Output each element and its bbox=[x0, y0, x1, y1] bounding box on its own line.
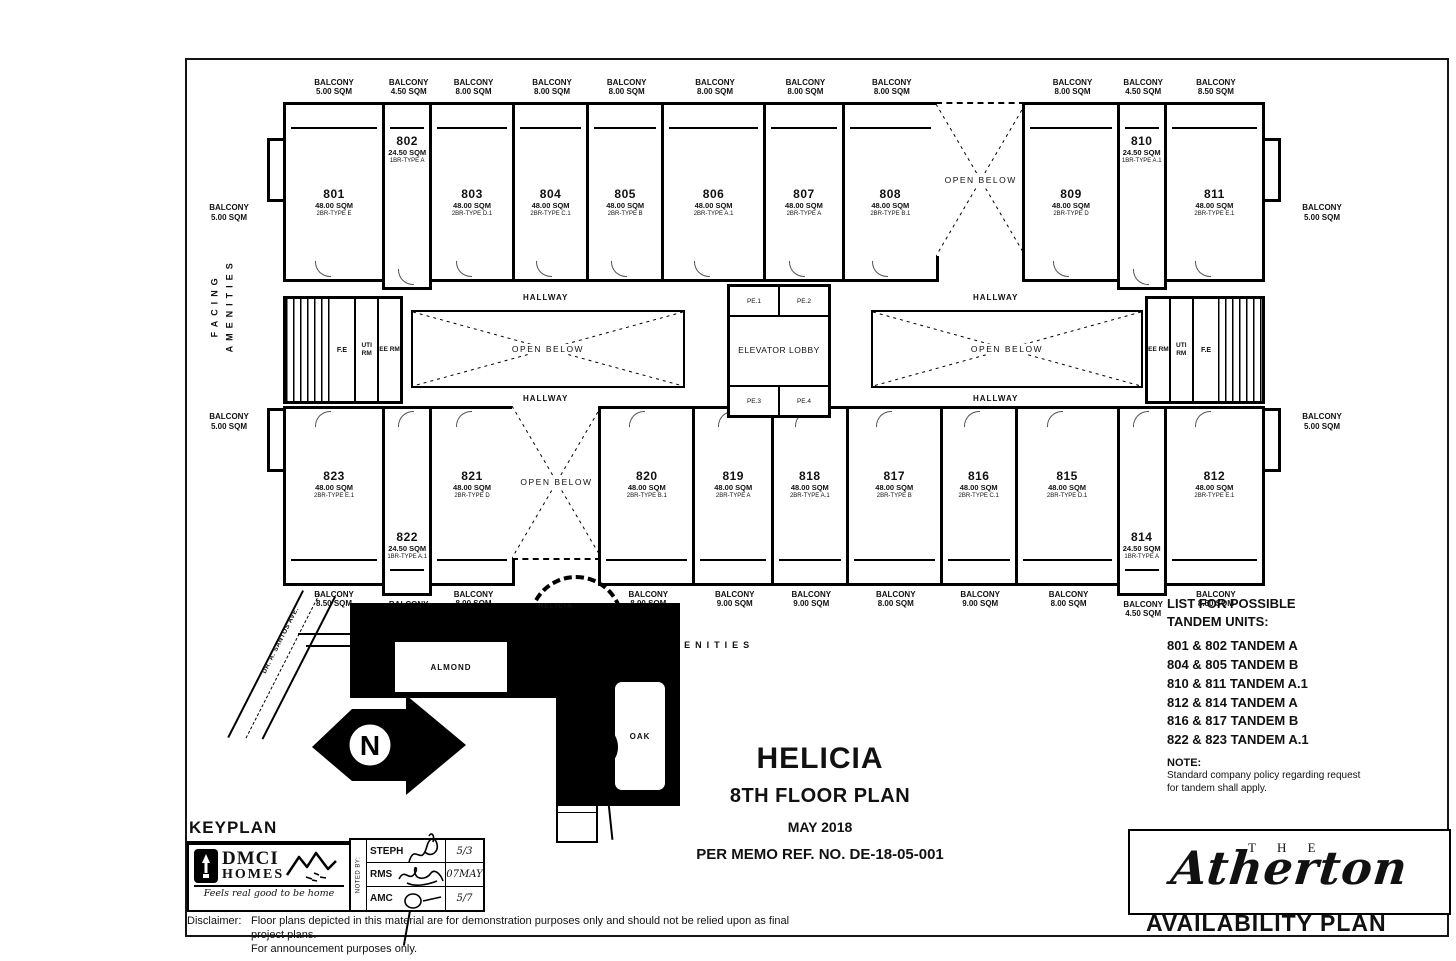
facing-amenities-left: FACING AMENITIES bbox=[208, 230, 239, 380]
unit-type: 2BR-TYPE C.1 bbox=[959, 493, 999, 500]
balcony-area: 8.00 SQM bbox=[845, 87, 939, 96]
unit-type: 2BR-TYPE B.1 bbox=[870, 211, 910, 218]
unit-type: 2BR-TYPE A.1 bbox=[790, 493, 830, 500]
unit-area: 48.00 SQM bbox=[532, 201, 570, 210]
unit-number: 819 bbox=[722, 470, 744, 483]
unit-820: 820 48.00 SQM 2BR-TYPE B.1 bbox=[598, 406, 695, 586]
open-below-label: OPEN BELOW bbox=[509, 344, 587, 354]
unit-number: 811 bbox=[1204, 188, 1225, 201]
note-block: NOTE: Standard company policy regarding … bbox=[1167, 757, 1417, 795]
balcony-label: BALCONY 8.50 SQM bbox=[1167, 78, 1265, 102]
utility-room: UTI RM bbox=[1171, 299, 1194, 401]
unit-804: 804 48.00 SQM 2BR-TYPE C.1 bbox=[512, 102, 590, 282]
unit-number: 814 bbox=[1131, 531, 1153, 544]
balcony-label: BALCONY 4.50 SQM bbox=[1120, 78, 1167, 102]
unit-814: 814 24.50 SQM 1BR-TYPE A bbox=[1117, 406, 1167, 596]
unit-number: 808 bbox=[880, 188, 902, 201]
balcony-word: BALCONY bbox=[589, 78, 664, 87]
fire-exit-stairs-right: EE RM UTI RM F.E bbox=[1145, 296, 1265, 404]
unit-815: 815 48.00 SQM 2BR-TYPE D.1 bbox=[1015, 406, 1120, 586]
driveway-line bbox=[298, 633, 352, 635]
mountain-art-icon bbox=[286, 849, 338, 883]
unit-type: 2BR-TYPE A bbox=[716, 493, 751, 500]
unit-type: 2BR-TYPE A.1 bbox=[694, 211, 734, 218]
oak-label: OAK bbox=[630, 732, 651, 741]
balcony-word: BALCONY bbox=[385, 78, 432, 87]
balcony-area: 8.00 SQM bbox=[1025, 87, 1119, 96]
unit-area: 48.00 SQM bbox=[315, 483, 353, 492]
balcony-word: BALCONY bbox=[845, 78, 939, 87]
approval-date: 07MAY bbox=[445, 863, 483, 886]
unit-type: 2BR-TYPE E.1 bbox=[314, 493, 354, 500]
side-balcony-label: BALCONY 5.00 SQM bbox=[1291, 412, 1353, 431]
unit-area: 24.50 SQM bbox=[1123, 148, 1161, 157]
unit-type: 2BR-TYPE D.1 bbox=[452, 211, 492, 218]
hallway-label: HALLWAY bbox=[523, 394, 568, 403]
balcony-label: BALCONY 8.00 SQM bbox=[432, 78, 514, 102]
unit-type: 2BR-TYPE D.1 bbox=[1047, 493, 1087, 500]
unit-number: 818 bbox=[799, 470, 821, 483]
balcony-area: 8.00 SQM bbox=[589, 87, 664, 96]
tandem-item: 812 & 814 TANDEM A bbox=[1167, 694, 1427, 713]
balcony-label: BALCONY 4.50 SQM bbox=[385, 78, 432, 102]
unit-number: 801 bbox=[323, 188, 345, 201]
balcony-label: BALCONY 8.00 SQM bbox=[1025, 78, 1119, 102]
disclaimer-line: For announcement purposes only. bbox=[251, 943, 796, 957]
unit-type: 2BR-TYPE C.1 bbox=[530, 211, 570, 218]
balcony-label: BALCONY 8.00 SQM bbox=[1018, 586, 1120, 616]
corner-balcony bbox=[1263, 408, 1281, 472]
unit-type: 2BR-TYPE B bbox=[877, 493, 912, 500]
unit-area: 24.50 SQM bbox=[388, 148, 426, 157]
side-balcony-label: BALCONY 5.00 SQM bbox=[198, 412, 260, 431]
balcony-word: BALCONY bbox=[1302, 203, 1342, 212]
approver-name-text: STEPH bbox=[370, 846, 403, 857]
balcony-word: BALCONY bbox=[432, 78, 514, 87]
unit-area: 48.00 SQM bbox=[875, 483, 913, 492]
electrical-room: EE RM bbox=[377, 299, 400, 401]
unit-823: 823 48.00 SQM 2BR-TYPE E.1 bbox=[283, 406, 385, 586]
balcony-word: BALCONY bbox=[1302, 412, 1342, 421]
balcony-area: 5.00 SQM bbox=[211, 213, 247, 222]
balcony-word: BALCONY bbox=[1018, 590, 1120, 599]
unit-number: 806 bbox=[703, 188, 725, 201]
balcony-label-empty bbox=[939, 78, 1025, 102]
signature-rms bbox=[397, 863, 445, 889]
corridor-band: HALLWAY HALLWAY HALLWAY HALLWAY F.E UTI … bbox=[283, 290, 1265, 406]
dmci-text: DMCI bbox=[222, 850, 284, 868]
unit-area: 48.00 SQM bbox=[871, 201, 909, 210]
balcony-label: BALCONY 8.00 SQM bbox=[515, 78, 590, 102]
balcony-word: BALCONY bbox=[774, 590, 849, 599]
corner-balcony bbox=[1263, 138, 1281, 202]
elevator-row-top: PE.1 PE.2 bbox=[730, 287, 828, 317]
open-below-label: OPEN BELOW bbox=[968, 344, 1046, 354]
approver-name: AMC bbox=[367, 887, 445, 910]
unit-type: 1BR-TYPE A bbox=[390, 158, 425, 165]
balcony-area: 8.00 SQM bbox=[515, 87, 590, 96]
unit-816: 816 48.00 SQM 2BR-TYPE C.1 bbox=[940, 406, 1018, 586]
unit-number: 803 bbox=[461, 188, 483, 201]
balcony-area: 8.00 SQM bbox=[766, 87, 845, 96]
unit-806: 806 48.00 SQM 2BR-TYPE A.1 bbox=[661, 102, 766, 282]
balcony-area: 8.00 SQM bbox=[664, 87, 766, 96]
balcony-area: 8.00 SQM bbox=[432, 87, 514, 96]
balcony-area: 9.00 SQM bbox=[774, 599, 849, 608]
balcony-word: BALCONY bbox=[209, 412, 249, 421]
unit-811: 811 48.00 SQM 2BR-TYPE E.1 bbox=[1164, 102, 1265, 282]
elevator-pe1: PE.1 bbox=[730, 287, 778, 315]
helicia-site-label: HELICIA bbox=[538, 603, 573, 610]
driveway-line bbox=[306, 645, 352, 647]
balcony-word: BALCONY bbox=[766, 78, 845, 87]
tandem-list: LIST FOR POSSIBLE TANDEM UNITS: 801 & 80… bbox=[1167, 595, 1427, 750]
hallway-label: HALLWAY bbox=[523, 293, 568, 302]
unit-822: 822 24.50 SQM 1BR-TYPE A.1 bbox=[382, 406, 432, 596]
floor-plan-title: 8TH FLOOR PLAN bbox=[640, 785, 1000, 808]
noted-by-text: NOTED BY: bbox=[356, 857, 362, 894]
approver-name-text: RMS bbox=[370, 869, 392, 880]
balcony-label: BALCONY 9.00 SQM bbox=[943, 586, 1018, 616]
balcony-label: BALCONY 8.00 SQM bbox=[766, 78, 845, 102]
elevator-pe4: PE.4 bbox=[778, 387, 828, 415]
unit-area: 48.00 SQM bbox=[1052, 201, 1090, 210]
unit-812: 812 48.00 SQM 2BR-TYPE E.1 bbox=[1164, 406, 1265, 586]
unit-818: 818 48.00 SQM 2BR-TYPE A.1 bbox=[771, 406, 849, 586]
atherton-logo-box: T H E Atherton bbox=[1128, 829, 1451, 915]
disclaimer-line: Floor plans depicted in this material ar… bbox=[251, 915, 796, 943]
utility-room: UTI RM bbox=[354, 299, 377, 401]
unit-area: 48.00 SQM bbox=[960, 483, 998, 492]
balcony-area: 5.00 SQM bbox=[211, 422, 247, 431]
unit-area: 48.00 SQM bbox=[1195, 201, 1233, 210]
unit-area: 24.50 SQM bbox=[388, 544, 426, 553]
fire-exit-label: F.E bbox=[1194, 299, 1219, 401]
balcony-word: BALCONY bbox=[1167, 78, 1265, 87]
keyplan-heading: KEYPLAN bbox=[189, 818, 277, 838]
unit-number: 816 bbox=[968, 470, 990, 483]
unit-area: 48.00 SQM bbox=[785, 201, 823, 210]
approver-name: RMS bbox=[367, 863, 445, 886]
fire-exit-label: F.E bbox=[330, 299, 355, 401]
note-title: NOTE: bbox=[1167, 757, 1417, 769]
balcony-word: BALCONY bbox=[209, 203, 249, 212]
unit-number: 822 bbox=[396, 531, 418, 544]
balcony-area: 8.50 SQM bbox=[1167, 87, 1265, 96]
balcony-label: BALCONY 8.00 SQM bbox=[849, 586, 943, 616]
elevator-lobby-label: ELEVATOR LOBBY bbox=[730, 317, 828, 385]
tandem-item: 810 & 811 TANDEM A.1 bbox=[1167, 675, 1427, 694]
elevator-pe3: PE.3 bbox=[730, 387, 778, 415]
dmci-homes-logo: DMCI HOMES Feels real good to be home bbox=[187, 843, 351, 912]
homes-text: HOMES bbox=[222, 868, 284, 881]
balcony-word: BALCONY bbox=[1025, 78, 1119, 87]
note-line: for tandem shall apply. bbox=[1167, 782, 1417, 795]
unit-817: 817 48.00 SQM 2BR-TYPE B bbox=[846, 406, 943, 586]
keyplan-site-map: DR. A. SANTOS AVE. HELICIA ALMOND OAK N bbox=[218, 573, 708, 851]
approval-date: 5/7 bbox=[445, 887, 483, 910]
unit-type: 1BR-TYPE A.1 bbox=[1122, 158, 1162, 165]
open-below-label: OPEN BELOW bbox=[942, 175, 1020, 185]
unit-number: 805 bbox=[614, 188, 636, 201]
unit-area: 48.00 SQM bbox=[628, 483, 666, 492]
electrical-room: EE RM bbox=[1148, 299, 1171, 401]
unit-area: 48.00 SQM bbox=[315, 201, 353, 210]
balcony-word: BALCONY bbox=[664, 78, 766, 87]
svg-text:N: N bbox=[360, 730, 380, 761]
balcony-label: BALCONY 5.00 SQM bbox=[283, 78, 385, 102]
unit-type: 2BR-TYPE A bbox=[787, 211, 822, 218]
unit-type: 2BR-TYPE D bbox=[454, 493, 489, 500]
tandem-item: 804 & 805 TANDEM B bbox=[1167, 656, 1427, 675]
unit-821: 821 48.00 SQM 2BR-TYPE D bbox=[429, 406, 514, 586]
unit-area: 48.00 SQM bbox=[695, 201, 733, 210]
unit-type: 2BR-TYPE E bbox=[317, 211, 352, 218]
side-balcony-label: BALCONY 5.00 SQM bbox=[1291, 203, 1353, 222]
balcony-word: BALCONY bbox=[943, 590, 1018, 599]
balcony-area: 4.50 SQM bbox=[1120, 609, 1167, 618]
unit-area: 48.00 SQM bbox=[453, 201, 491, 210]
tandem-item: 801 & 802 TANDEM A bbox=[1167, 637, 1427, 656]
dmci-tagline: Feels real good to be home bbox=[189, 887, 349, 899]
title-block: HELICIA 8TH FLOOR PLAN MAY 2018 PER MEMO… bbox=[640, 742, 1000, 863]
balcony-area: 8.00 SQM bbox=[849, 599, 943, 608]
unit-area: 48.00 SQM bbox=[606, 201, 644, 210]
top-unit-row: BALCONY 5.00 SQM 801 48.00 SQM 2BR-TYPE … bbox=[283, 78, 1265, 290]
noted-by-header: NOTED BY: bbox=[351, 840, 367, 910]
unit-number: 817 bbox=[883, 470, 905, 483]
unit-802: 802 24.50 SQM 1BR-TYPE A bbox=[382, 102, 432, 290]
plan-date: MAY 2018 bbox=[640, 819, 1000, 835]
unit-type: 2BR-TYPE D bbox=[1053, 211, 1088, 218]
unit-801: 801 48.00 SQM 2BR-TYPE E bbox=[283, 102, 385, 282]
unit-819: 819 48.00 SQM 2BR-TYPE A bbox=[692, 406, 774, 586]
unit-number: 823 bbox=[323, 470, 345, 483]
unit-type: 1BR-TYPE A.1 bbox=[387, 554, 427, 561]
elevator-pe2: PE.2 bbox=[778, 287, 828, 315]
unit-number: 807 bbox=[793, 188, 815, 201]
floor-plan: BALCONY 5.00 SQM 801 48.00 SQM 2BR-TYPE … bbox=[283, 78, 1265, 636]
unit-type: 2BR-TYPE E.1 bbox=[1194, 493, 1234, 500]
unit-number: 802 bbox=[396, 135, 418, 148]
unit-number: 820 bbox=[636, 470, 658, 483]
balcony-word: BALCONY bbox=[283, 78, 385, 87]
approver-name: STEPH bbox=[367, 840, 445, 863]
approval-date: 5/3 bbox=[445, 840, 483, 863]
open-below-label: OPEN BELOW bbox=[517, 477, 595, 487]
unit-number: 812 bbox=[1204, 470, 1226, 483]
north-arrow-icon: N bbox=[310, 695, 468, 795]
signature-amc bbox=[399, 889, 445, 913]
almond-label: ALMOND bbox=[430, 663, 471, 672]
tandem-title-line2: TANDEM UNITS: bbox=[1167, 613, 1427, 631]
hallway-label: HALLWAY bbox=[973, 394, 1018, 403]
balcony-label: BALCONY 4.50 SQM bbox=[1120, 596, 1167, 626]
unit-type: 2BR-TYPE E.1 bbox=[1194, 211, 1234, 218]
open-below-void-bottom: OPEN BELOW bbox=[512, 406, 601, 560]
unit-807: 807 48.00 SQM 2BR-TYPE A bbox=[763, 102, 845, 282]
unit-type: 1BR-TYPE A bbox=[1124, 554, 1159, 561]
tandem-item: 816 & 817 TANDEM B bbox=[1167, 712, 1427, 731]
unit-area: 48.00 SQM bbox=[791, 483, 829, 492]
balcony-label: BALCONY 9.00 SQM bbox=[774, 586, 849, 616]
tandem-item: 822 & 823 TANDEM A.1 bbox=[1167, 731, 1427, 750]
elevator-lobby: PE.1 PE.2 ELEVATOR LOBBY PE.3 PE.4 bbox=[727, 284, 831, 418]
balcony-word: BALCONY bbox=[849, 590, 943, 599]
unit-area: 48.00 SQM bbox=[714, 483, 752, 492]
balcony-area: 5.00 SQM bbox=[1304, 422, 1340, 431]
open-below-left: OPEN BELOW bbox=[411, 310, 685, 388]
unit-number: 815 bbox=[1056, 470, 1078, 483]
almond-building: ALMOND bbox=[394, 641, 508, 693]
dmci-wordmark: DMCI HOMES bbox=[222, 850, 284, 881]
site-circle-feature bbox=[570, 723, 618, 771]
unit-810: 810 24.50 SQM 1BR-TYPE A.1 bbox=[1117, 102, 1167, 290]
balcony-label: BALCONY 8.00 SQM bbox=[589, 78, 664, 102]
unit-809: 809 48.00 SQM 2BR-TYPE D bbox=[1022, 102, 1119, 282]
unit-803: 803 48.00 SQM 2BR-TYPE D.1 bbox=[429, 102, 514, 282]
balcony-area: 5.00 SQM bbox=[1304, 213, 1340, 222]
project-name: HELICIA bbox=[640, 742, 1000, 776]
disclaimer: Disclaimer: Floor plans depicted in this… bbox=[187, 915, 796, 956]
unit-type: 2BR-TYPE B.1 bbox=[627, 493, 667, 500]
dmci-plumb-icon bbox=[194, 849, 218, 883]
stair-treads bbox=[286, 299, 330, 401]
unit-area: 48.00 SQM bbox=[453, 483, 491, 492]
balcony-label: BALCONY 8.00 SQM bbox=[664, 78, 766, 102]
unit-type: 2BR-TYPE B bbox=[608, 211, 643, 218]
balcony-label: BALCONY 8.00 SQM bbox=[845, 78, 939, 102]
noted-by-table: NOTED BY: STEPH 5/3 RMS 07MAY AMC 5/7 bbox=[349, 838, 485, 912]
stair-treads bbox=[1218, 299, 1262, 401]
unit-number: 821 bbox=[461, 470, 483, 483]
open-below-void-top: OPEN BELOW bbox=[936, 102, 1025, 256]
open-below-right: OPEN BELOW bbox=[871, 310, 1143, 388]
fire-exit-stairs-left: F.E UTI RM EE RM bbox=[283, 296, 403, 404]
unit-area: 48.00 SQM bbox=[1195, 483, 1233, 492]
availability-plan-label: AVAILABILITY PLAN bbox=[1146, 910, 1387, 937]
brand-name: Atherton bbox=[1127, 841, 1452, 895]
balcony-area: 4.50 SQM bbox=[385, 87, 432, 96]
balcony-word: BALCONY bbox=[1120, 600, 1167, 609]
balcony-word: BALCONY bbox=[1120, 78, 1167, 87]
memo-reference: PER MEMO REF. NO. DE-18-05-001 bbox=[640, 846, 1000, 863]
hallway-label: HALLWAY bbox=[973, 293, 1018, 302]
road-centerline bbox=[246, 594, 320, 739]
unit-number: 809 bbox=[1060, 188, 1082, 201]
balcony-area: 5.00 SQM bbox=[283, 87, 385, 96]
unit-805: 805 48.00 SQM 2BR-TYPE B bbox=[586, 102, 664, 282]
tandem-title-line1: LIST FOR POSSIBLE bbox=[1167, 595, 1427, 613]
unit-808: 808 48.00 SQM 2BR-TYPE B.1 bbox=[842, 102, 939, 282]
unit-area: 48.00 SQM bbox=[1048, 483, 1086, 492]
side-balcony-label: BALCONY 5.00 SQM bbox=[198, 203, 260, 222]
unit-number: 810 bbox=[1131, 135, 1153, 148]
balcony-area: 8.00 SQM bbox=[1018, 599, 1120, 608]
elevator-row-bottom: PE.3 PE.4 bbox=[730, 385, 828, 415]
approver-name-text: AMC bbox=[370, 893, 393, 904]
helicia-arc bbox=[528, 575, 624, 625]
note-line: Standard company policy regarding reques… bbox=[1167, 769, 1417, 782]
unit-area: 24.50 SQM bbox=[1123, 544, 1161, 553]
balcony-area: 4.50 SQM bbox=[1120, 87, 1167, 96]
availability-plan-sheet: FACING AMENITIES BALCONY 5.00 SQM BALCON… bbox=[0, 0, 1456, 961]
unit-number: 804 bbox=[540, 188, 562, 201]
balcony-area: 9.00 SQM bbox=[943, 599, 1018, 608]
balcony-word: BALCONY bbox=[515, 78, 590, 87]
basketball-court bbox=[556, 781, 598, 843]
disclaimer-label: Disclaimer: bbox=[187, 915, 251, 956]
